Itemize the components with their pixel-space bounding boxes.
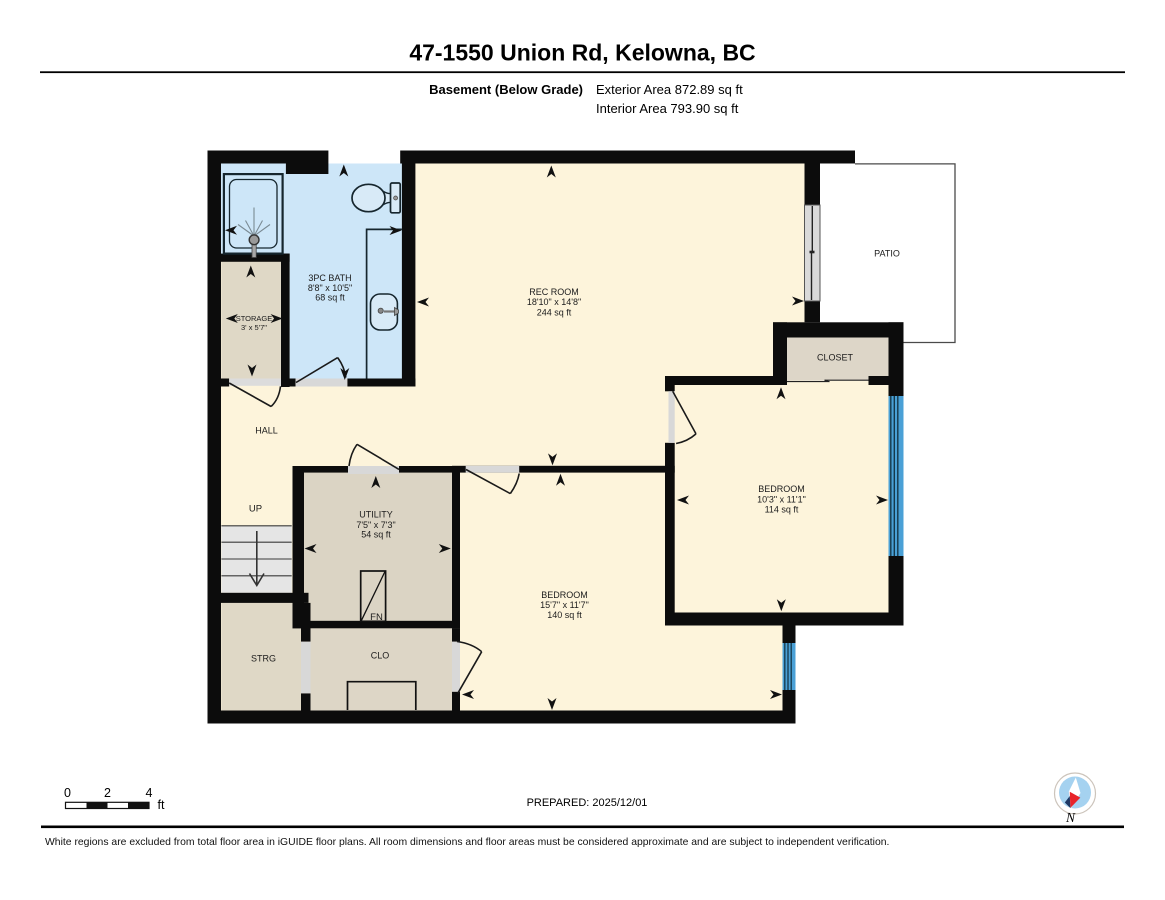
svg-text:0: 0 — [64, 786, 71, 800]
svg-text:3' x 5'7": 3' x 5'7" — [241, 323, 267, 332]
svg-text:PREPARED: 2025/12/01: PREPARED: 2025/12/01 — [527, 797, 648, 809]
svg-text:Exterior Area 872.89 sq ft: Exterior Area 872.89 sq ft — [596, 82, 743, 97]
svg-text:UTILITY: UTILITY — [359, 510, 393, 520]
svg-text:HALL: HALL — [255, 426, 278, 436]
svg-text:7'5" x 7'3": 7'5" x 7'3" — [356, 520, 395, 530]
svg-text:CLOSET: CLOSET — [817, 353, 854, 363]
svg-text:PATIO: PATIO — [874, 249, 900, 259]
svg-text:ft: ft — [158, 798, 165, 812]
svg-text:STORAGE: STORAGE — [236, 314, 273, 323]
svg-text:REC ROOM: REC ROOM — [529, 287, 579, 297]
svg-text:STRG: STRG — [251, 654, 276, 664]
svg-text:Interior Area 793.90 sq ft: Interior Area 793.90 sq ft — [596, 101, 739, 116]
svg-text:8'8" x 10'5": 8'8" x 10'5" — [308, 283, 352, 293]
svg-text:244 sq ft: 244 sq ft — [537, 308, 572, 318]
svg-text:CLO: CLO — [371, 651, 390, 661]
svg-text:BEDROOM: BEDROOM — [541, 590, 588, 600]
svg-text:FN: FN — [370, 612, 383, 623]
svg-text:BEDROOM: BEDROOM — [758, 484, 805, 494]
svg-text:114 sq ft: 114 sq ft — [765, 505, 799, 515]
svg-text:140 sq ft: 140 sq ft — [547, 610, 582, 620]
svg-text:54 sq ft: 54 sq ft — [361, 530, 391, 540]
svg-text:UP: UP — [249, 504, 262, 515]
svg-text:3PC BATH: 3PC BATH — [308, 273, 351, 283]
svg-text:Basement (Below Grade): Basement (Below Grade) — [429, 82, 583, 97]
svg-text:2: 2 — [104, 786, 111, 800]
svg-text:4: 4 — [146, 786, 153, 800]
svg-text:White regions are excluded fro: White regions are excluded from total fl… — [45, 837, 889, 848]
svg-text:N: N — [1065, 810, 1076, 825]
svg-text:18'10" x 14'8": 18'10" x 14'8" — [527, 297, 581, 307]
svg-text:15'7" x 11'7": 15'7" x 11'7" — [540, 600, 589, 610]
svg-text:68 sq ft: 68 sq ft — [315, 293, 345, 303]
svg-text:10'3" x 11'1": 10'3" x 11'1" — [757, 494, 806, 504]
svg-text:47-1550 Union Rd, Kelowna, BC: 47-1550 Union Rd, Kelowna, BC — [409, 40, 755, 66]
